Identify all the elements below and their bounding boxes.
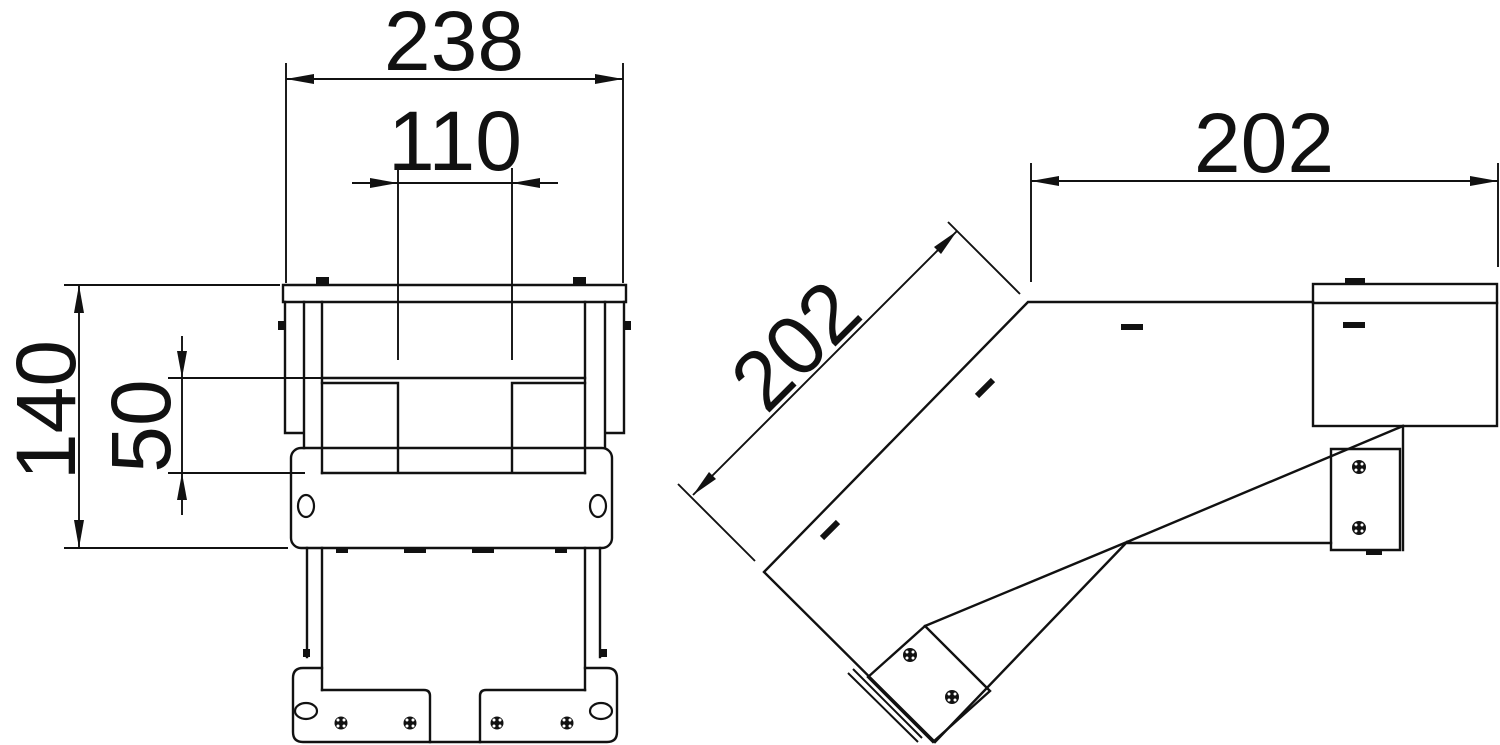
arrow-icon [74, 285, 84, 313]
side-end-plate [868, 626, 990, 742]
arrow-icon [74, 520, 84, 548]
screw-icon [335, 717, 348, 730]
screw-icon [1352, 521, 1366, 535]
screw-icon [561, 717, 574, 730]
clamp-tab-icon [555, 548, 567, 553]
flange-tab-icon [316, 277, 329, 284]
bracket-hole-icon [295, 703, 317, 719]
dim-value-202-horizontal: 202 [1194, 96, 1334, 190]
clamp-hole-icon [590, 495, 606, 517]
screw-icon [1352, 460, 1366, 474]
front-top-flange [283, 285, 626, 302]
side-end-bracket [1331, 426, 1403, 550]
flange-tab-icon [573, 277, 586, 284]
arrow-icon [177, 351, 187, 378]
front-foot-plates [322, 690, 585, 742]
clamp-tab-icon [404, 548, 426, 553]
clamp-tab-icon [336, 548, 348, 553]
clamp-tab-icon [472, 548, 494, 553]
duct-slot-icon [822, 522, 838, 538]
rail-tab-icon [625, 321, 631, 330]
bracket-hole-icon [590, 703, 612, 719]
dim-value-140: 140 [0, 340, 93, 480]
front-bottom-bracket [293, 668, 617, 742]
dimension-diagonal-length: 202 [678, 222, 1020, 561]
dimension-horizontal-length: 202 [1031, 96, 1498, 282]
technical-drawing-canvas: 238 110 140 50 202 202 [0, 0, 1500, 745]
front-clamp-bracket [291, 448, 612, 548]
dim-value-50: 50 [94, 379, 188, 472]
rail-foot-icon [600, 649, 607, 657]
bracket-tab-icon [1366, 550, 1382, 555]
box-tab-icon [1345, 278, 1365, 284]
side-view [764, 278, 1497, 742]
side-connector-box [1313, 284, 1497, 426]
arrow-icon [1031, 176, 1059, 186]
screw-icon [903, 648, 917, 662]
dim-value-202-diagonal: 202 [713, 263, 879, 429]
rail-foot-icon [303, 649, 310, 657]
dimension-inner-width: 110 [352, 94, 558, 360]
arrow-icon [1470, 176, 1498, 186]
dim-value-238: 238 [384, 0, 524, 88]
front-inner-partitions [322, 378, 585, 473]
end-flange-lines [848, 669, 922, 742]
rail-tab-icon [278, 321, 284, 330]
drawing-svg: 238 110 140 50 202 202 [0, 0, 1500, 745]
clamp-hole-icon [298, 495, 314, 517]
screw-icon [404, 717, 417, 730]
duct-slot-icon [977, 380, 993, 396]
screw-icon [491, 717, 504, 730]
side-outline [764, 302, 1497, 742]
front-view [278, 277, 631, 742]
front-lower-body [307, 548, 600, 690]
dim-value-110: 110 [388, 94, 522, 188]
arrow-icon [595, 74, 623, 84]
arrow-icon [286, 74, 314, 84]
screw-icon [945, 690, 959, 704]
arrow-icon [177, 473, 187, 500]
dimension-inner-height: 50 [94, 336, 322, 515]
